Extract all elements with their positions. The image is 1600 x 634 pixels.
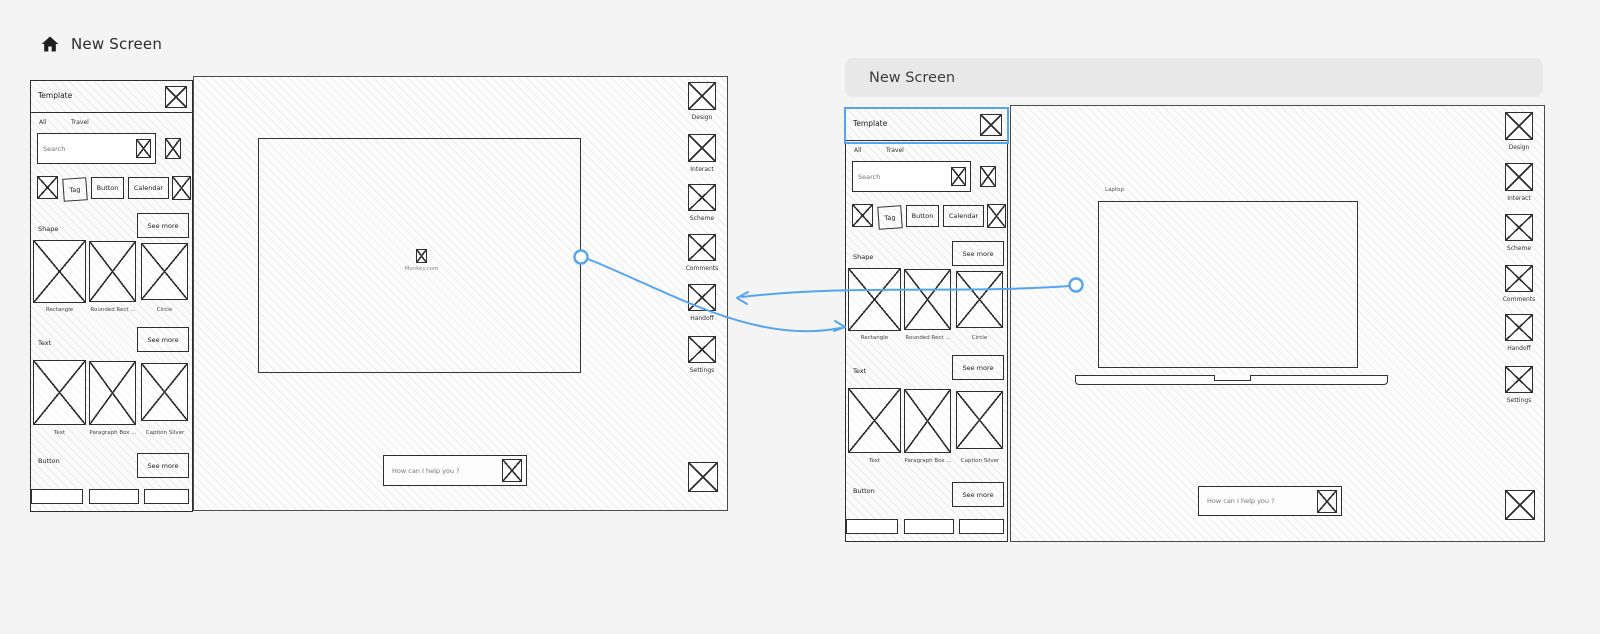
tab-all[interactable]: All bbox=[39, 119, 46, 126]
chat-input[interactable] bbox=[392, 456, 492, 485]
tab-travel[interactable]: Travel bbox=[886, 147, 904, 154]
section-shape-label: Shape bbox=[38, 225, 58, 233]
connector-arrowhead-left bbox=[737, 292, 748, 304]
design-icon[interactable] bbox=[1505, 112, 1533, 140]
see-more-shape-button[interactable]: See more bbox=[137, 213, 189, 238]
text-item-label: Paragraph Box ... bbox=[83, 430, 143, 436]
screen-frame-1: Template All Travel Tag Button Calendar … bbox=[30, 76, 728, 512]
button-placeholder[interactable] bbox=[144, 489, 189, 504]
interact-label: Interact bbox=[1475, 195, 1563, 202]
section-text-label: Text bbox=[38, 339, 51, 347]
extra-icon[interactable] bbox=[1505, 490, 1535, 520]
tab-travel[interactable]: Travel bbox=[71, 119, 89, 126]
panel-title: Template bbox=[38, 91, 72, 100]
frame-title-bar[interactable]: New Screen bbox=[845, 58, 1543, 97]
shape-item-label: Rectangle bbox=[33, 307, 86, 313]
caption-thumb[interactable] bbox=[956, 391, 1003, 449]
settings-label: Settings bbox=[658, 367, 746, 374]
text-item-label: Text bbox=[33, 430, 86, 436]
search-input[interactable] bbox=[43, 134, 128, 163]
button-placeholder[interactable] bbox=[846, 519, 898, 534]
laptop-label: Laptop bbox=[1105, 187, 1124, 193]
interact-icon[interactable] bbox=[688, 134, 716, 162]
search-field[interactable] bbox=[37, 133, 156, 164]
handoff-icon[interactable] bbox=[688, 284, 716, 311]
chip-button[interactable]: Button bbox=[906, 205, 939, 227]
button-placeholder[interactable] bbox=[89, 489, 139, 504]
chip-calendar[interactable]: Calendar bbox=[943, 205, 984, 227]
caption-thumb[interactable] bbox=[141, 363, 188, 421]
search-clear-icon[interactable] bbox=[136, 139, 151, 158]
template-panel: Template All Travel Tag Button Calendar … bbox=[30, 80, 193, 512]
shape-item-label: Rounded Rect ... bbox=[900, 335, 956, 341]
shape-rounded-thumb[interactable] bbox=[904, 269, 951, 330]
see-more-button-button[interactable]: See more bbox=[137, 453, 189, 478]
chat-field[interactable] bbox=[1198, 486, 1342, 516]
filter-icon[interactable] bbox=[980, 166, 996, 187]
shape-item-label: Rounded Rect ... bbox=[85, 307, 141, 313]
handoff-label: Handoff bbox=[1475, 345, 1563, 352]
scheme-icon[interactable] bbox=[688, 184, 716, 211]
comments-icon[interactable] bbox=[688, 234, 716, 261]
see-more-button-button[interactable]: See more bbox=[952, 482, 1004, 507]
chat-input[interactable] bbox=[1207, 487, 1307, 515]
close-icon[interactable] bbox=[980, 114, 1002, 136]
shape-rectangle-thumb[interactable] bbox=[33, 240, 86, 303]
comments-icon[interactable] bbox=[1505, 265, 1533, 292]
image-placeholder-caption: Monkey.com bbox=[384, 266, 459, 272]
panel-title: Template bbox=[853, 119, 887, 128]
search-input[interactable] bbox=[858, 162, 943, 191]
button-placeholder[interactable] bbox=[31, 489, 83, 504]
button-placeholder[interactable] bbox=[904, 519, 954, 534]
shape-rectangle-thumb[interactable] bbox=[848, 268, 901, 331]
scheme-label: Scheme bbox=[658, 215, 746, 222]
chat-send-icon[interactable] bbox=[1317, 490, 1337, 513]
interact-label: Interact bbox=[658, 166, 746, 173]
chip-placeholder-icon[interactable] bbox=[852, 204, 873, 227]
design-label: Design bbox=[658, 114, 746, 121]
handoff-icon[interactable] bbox=[1505, 314, 1533, 341]
text-item-label: Caption Silver bbox=[954, 458, 1006, 464]
shape-item-label: Circle bbox=[956, 335, 1003, 341]
shape-rounded-thumb[interactable] bbox=[89, 241, 136, 302]
section-button-label: Button bbox=[38, 457, 60, 465]
comments-label: Comments bbox=[658, 265, 746, 272]
chip-tag[interactable]: Tag bbox=[62, 177, 88, 202]
frame-title: New Screen bbox=[869, 70, 955, 86]
button-placeholder[interactable] bbox=[959, 519, 1004, 534]
shape-item-label: Circle bbox=[141, 307, 188, 313]
connector-arrowhead-right bbox=[834, 321, 845, 331]
design-label: Design bbox=[1475, 144, 1563, 151]
settings-icon[interactable] bbox=[1505, 366, 1533, 393]
design-icon[interactable] bbox=[688, 82, 716, 110]
handoff-label: Handoff bbox=[658, 315, 746, 322]
template-panel: Template All Travel Tag Button Calendar … bbox=[845, 108, 1008, 542]
section-button-label: Button bbox=[853, 487, 875, 495]
section-shape-label: Shape bbox=[853, 253, 873, 261]
shape-circle-thumb[interactable] bbox=[956, 271, 1003, 328]
search-clear-icon[interactable] bbox=[951, 167, 966, 186]
laptop-notch bbox=[1214, 375, 1251, 381]
search-field[interactable] bbox=[852, 161, 971, 192]
section-text-label: Text bbox=[853, 367, 866, 375]
comments-label: Comments bbox=[1475, 296, 1563, 303]
see-more-shape-button[interactable]: See more bbox=[952, 241, 1004, 266]
tab-all[interactable]: All bbox=[854, 147, 861, 154]
interact-icon[interactable] bbox=[1505, 163, 1533, 191]
panel-header-selected[interactable]: Template bbox=[846, 109, 1007, 141]
chip-placeholder-icon[interactable] bbox=[987, 204, 1006, 228]
panel-header: Template bbox=[31, 81, 192, 113]
screen-frame-2: Template All Travel Tag Button Calendar … bbox=[845, 105, 1545, 542]
text-thumb[interactable] bbox=[848, 388, 901, 453]
text-item-label: Paragraph Box ... bbox=[898, 458, 958, 464]
chat-field[interactable] bbox=[383, 455, 527, 486]
scheme-label: Scheme bbox=[1475, 245, 1563, 252]
see-more-text-button[interactable]: See more bbox=[137, 327, 189, 352]
chip-tag[interactable]: Tag bbox=[877, 205, 903, 230]
settings-icon[interactable] bbox=[688, 336, 716, 363]
close-icon[interactable] bbox=[165, 86, 187, 108]
home-icon[interactable] bbox=[40, 34, 60, 54]
page-title: New Screen bbox=[71, 35, 162, 53]
chip-placeholder-icon[interactable] bbox=[172, 176, 191, 200]
paragraph-thumb[interactable] bbox=[89, 361, 136, 425]
text-item-label: Caption Silver bbox=[139, 430, 191, 436]
settings-label: Settings bbox=[1475, 397, 1563, 404]
shape-circle-thumb[interactable] bbox=[141, 243, 188, 300]
filter-icon[interactable] bbox=[165, 138, 181, 159]
chat-send-icon[interactable] bbox=[502, 459, 522, 482]
laptop-base[interactable] bbox=[1075, 375, 1388, 385]
shape-item-label: Rectangle bbox=[848, 335, 901, 341]
paragraph-thumb[interactable] bbox=[904, 389, 951, 453]
extra-icon[interactable] bbox=[688, 462, 718, 492]
chip-calendar[interactable]: Calendar bbox=[128, 177, 169, 199]
canvas-rectangle[interactable]: Monkey.com bbox=[258, 138, 581, 373]
chip-button[interactable]: Button bbox=[91, 177, 124, 199]
chip-placeholder-icon[interactable] bbox=[37, 176, 58, 199]
laptop-screen[interactable] bbox=[1098, 201, 1358, 368]
scheme-icon[interactable] bbox=[1505, 214, 1533, 241]
see-more-text-button[interactable]: See more bbox=[952, 355, 1004, 380]
text-item-label: Text bbox=[848, 458, 901, 464]
breadcrumb: New Screen bbox=[40, 34, 162, 54]
text-thumb[interactable] bbox=[33, 360, 86, 425]
image-placeholder-icon bbox=[416, 249, 427, 263]
